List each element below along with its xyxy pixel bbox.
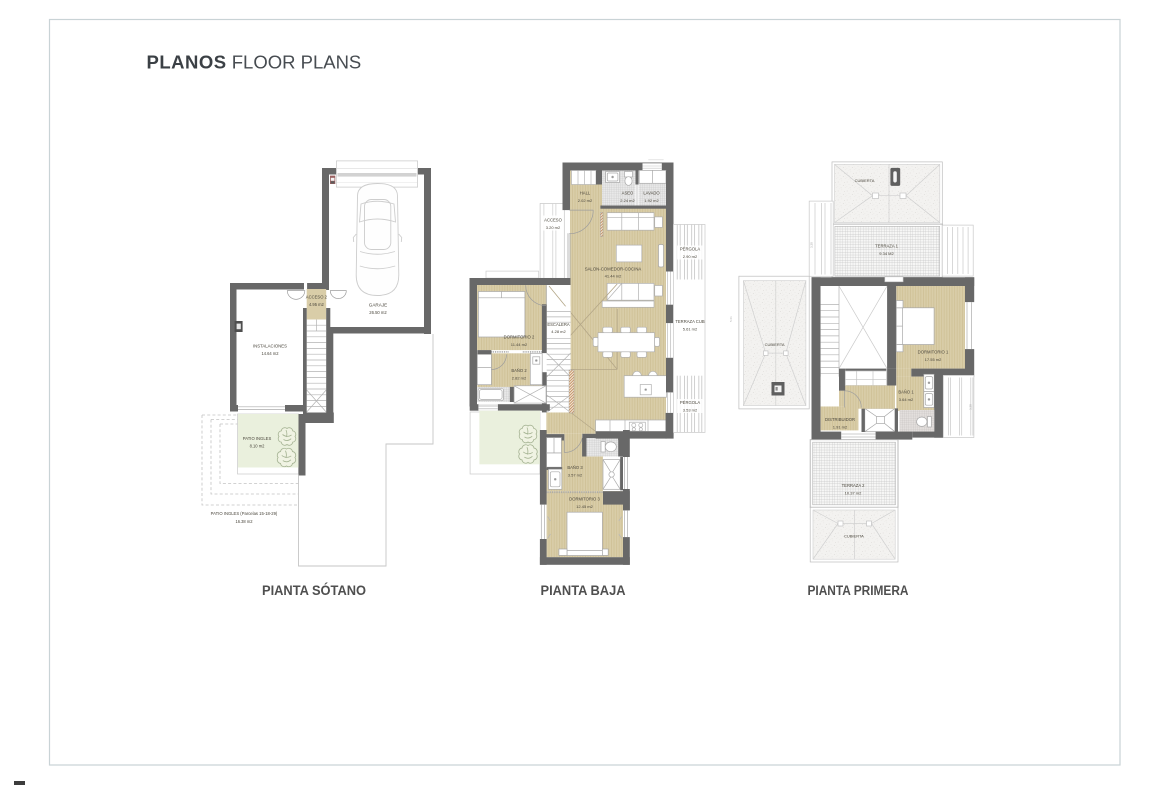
svg-text:CUBIERTA: CUBIERTA [844, 534, 864, 539]
svg-text:CUBIERTA: CUBIERTA [855, 178, 875, 183]
svg-text:2.24 m2: 2.24 m2 [620, 198, 635, 203]
svg-text:PÉRGOLA: PÉRGOLA [680, 400, 700, 405]
svg-text:BAÑO 3: BAÑO 3 [567, 465, 583, 470]
svg-text:3.20 m2: 3.20 m2 [546, 225, 561, 230]
svg-text:3.53 m2: 3.53 m2 [683, 408, 698, 413]
svg-text:ASEO: ASEO [622, 191, 634, 196]
svg-text:PATIO INGLES (Parcelas 15-18-2: PATIO INGLES (Parcelas 15-18-29) [211, 511, 278, 516]
svg-text:ACCESO: ACCESO [544, 218, 562, 223]
svg-text:2.82 m2: 2.82 m2 [512, 376, 527, 381]
svg-text:12.45 m2: 12.45 m2 [576, 504, 593, 509]
svg-text:1.92 m2: 1.92 m2 [644, 198, 659, 203]
svg-text:11.44 m2: 11.44 m2 [511, 342, 528, 347]
svg-text:17.55 m2: 17.55 m2 [925, 357, 942, 362]
svg-text:5.61 m2: 5.61 m2 [683, 327, 698, 332]
svg-text:DORMITORIO 2: DORMITORIO 2 [504, 335, 535, 340]
svg-text:PIANTA BAJA: PIANTA BAJA [541, 583, 626, 598]
svg-text:LAVADO: LAVADO [643, 191, 660, 196]
svg-text:GARAJE: GARAJE [369, 303, 387, 308]
svg-text:PIANTA PRIMERA: PIANTA PRIMERA [808, 583, 909, 598]
svg-text:CUBIERTA: CUBIERTA [765, 342, 785, 347]
svg-text:DORMITORIO 1: DORMITORIO 1 [918, 350, 949, 355]
svg-text:TERRAZA 2: TERRAZA 2 [842, 483, 865, 488]
svg-text:4.95 m2: 4.95 m2 [309, 302, 325, 307]
svg-text:4.28 m2: 4.28 m2 [551, 329, 566, 334]
svg-text:INSTALACIONES: INSTALACIONES [253, 344, 287, 349]
svg-text:3.57 m2: 3.57 m2 [568, 473, 583, 478]
svg-text:HALL: HALL [580, 191, 591, 196]
svg-text:DORMITORIO 3: DORMITORIO 3 [569, 497, 600, 502]
svg-text:26.50 m2: 26.50 m2 [369, 310, 387, 315]
svg-text:DISTRIBUIDOR: DISTRIBUIDOR [825, 417, 855, 422]
svg-text:TERRAZA CUB: TERRAZA CUB [675, 319, 705, 324]
svg-text:1.91 m2: 1.91 m2 [833, 425, 848, 430]
svg-text:41.44 m2: 41.44 m2 [605, 274, 622, 279]
svg-text:PATIO INGLES: PATIO INGLES [243, 436, 272, 441]
svg-text:ACCESO 2: ACCESO 2 [306, 295, 328, 300]
svg-text:SALON-COMEDOR-COCINA: SALON-COMEDOR-COCINA [585, 266, 642, 271]
svg-text:PIANTA SÓTANO: PIANTA SÓTANO [262, 583, 366, 598]
svg-text:3.64 m2: 3.64 m2 [899, 397, 914, 402]
svg-text:ESCALERA: ESCALERA [547, 322, 570, 327]
svg-text:16.38 m2: 16.38 m2 [235, 519, 253, 524]
svg-text:9.34 M2: 9.34 M2 [879, 251, 894, 256]
svg-text:TERRAZA 1: TERRAZA 1 [875, 244, 898, 249]
svg-text:2.02 m2: 2.02 m2 [578, 198, 593, 203]
svg-text:3.20: 3.20 [810, 242, 814, 248]
svg-text:PLANOS FLOOR PLANS: PLANOS FLOOR PLANS [147, 52, 362, 73]
svg-text:14.64 m2: 14.64 m2 [261, 351, 279, 356]
svg-text:8.10 m2: 8.10 m2 [250, 444, 266, 449]
svg-text:PÉRGOLA: PÉRGOLA [680, 247, 700, 252]
svg-text:5.61: 5.61 [729, 316, 733, 322]
svg-text:BAÑO 2: BAÑO 2 [511, 368, 527, 373]
svg-text:3.20: 3.20 [969, 404, 973, 410]
svg-text:10.37 m2: 10.37 m2 [845, 491, 862, 496]
svg-text:2.90 m2: 2.90 m2 [683, 254, 698, 259]
svg-text:BAÑO 1: BAÑO 1 [898, 390, 914, 395]
